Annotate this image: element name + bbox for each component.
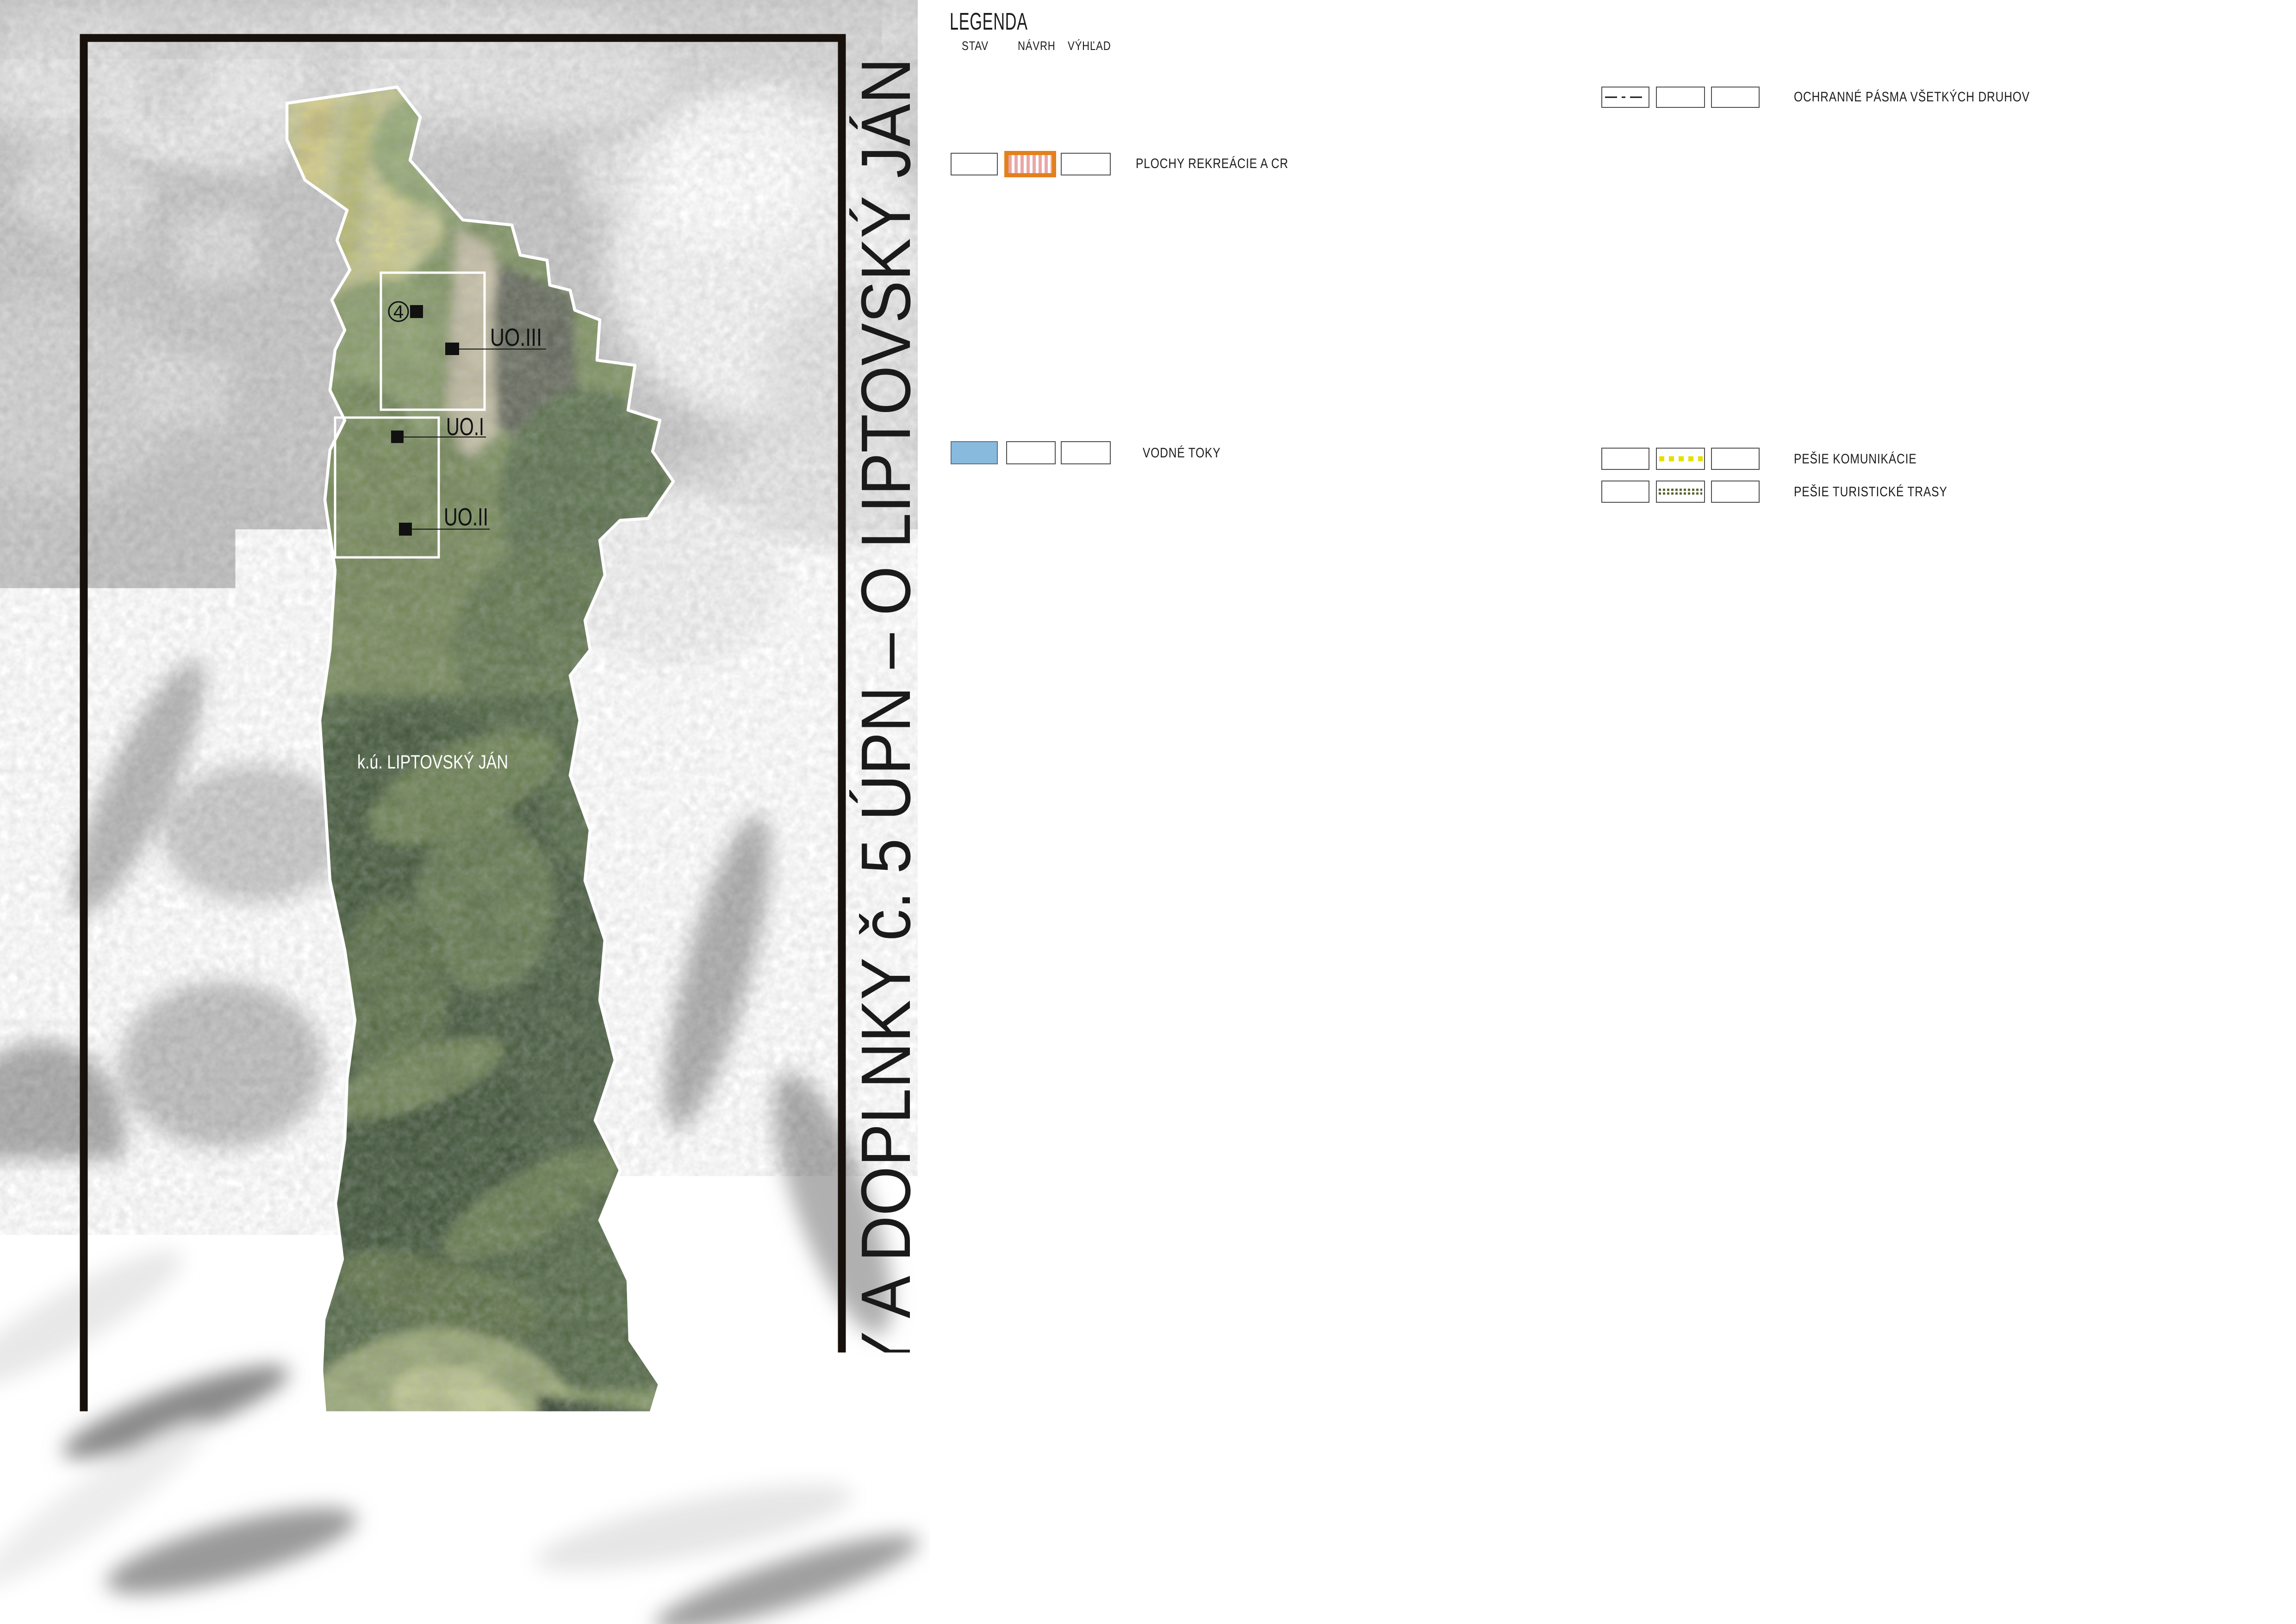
svg-text:UO.II: UO.II [444, 503, 488, 531]
svg-text:UO.III: UO.III [490, 324, 542, 351]
svg-text:4: 4 [393, 302, 404, 322]
svg-text:k.ú. LIPTOVSKÝ JÁN: k.ú. LIPTOVSKÝ JÁN [357, 751, 508, 773]
svg-text:ZMENY A DOPLNKY č. 5 ÚPN – O L: ZMENY A DOPLNKY č. 5 ÚPN – O LIPTOVSKÝ J… [846, 58, 925, 1554]
svg-text:UO.I: UO.I [446, 413, 484, 441]
